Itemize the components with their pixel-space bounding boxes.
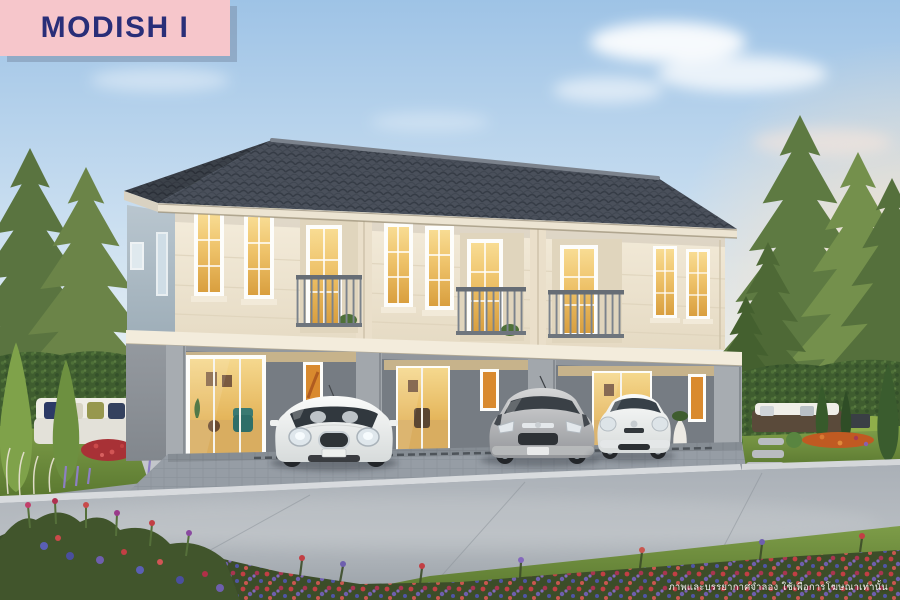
scene-illustration	[0, 0, 900, 600]
license-plate	[527, 447, 549, 455]
upper-window	[191, 210, 227, 302]
upper-window	[422, 226, 457, 316]
project-name-badge: MODISH I	[0, 0, 230, 56]
topiary-ball	[786, 432, 802, 448]
side-window	[131, 243, 143, 269]
side-mirror	[270, 420, 279, 426]
orange-flower-bed	[802, 432, 874, 448]
disclaimer-text: ภาพและบรรยากาศจำลอง ใช้เพื่อการโฆษณาเท่า…	[668, 580, 888, 595]
balcony	[548, 239, 624, 343]
upper-window	[381, 223, 416, 313]
balcony	[296, 219, 362, 333]
grille	[624, 428, 644, 433]
side-mirror	[389, 420, 398, 426]
upper-window	[683, 249, 713, 324]
grille	[518, 433, 558, 445]
project-name-label: MODISH I	[41, 11, 190, 45]
headlight	[600, 417, 616, 431]
upper-window	[650, 246, 680, 323]
rendering-stage: MODISH I ภาพและบรรยากาศจำลอง ใช้เพื่อการ…	[0, 0, 900, 600]
headlight	[652, 417, 668, 431]
balcony	[456, 233, 526, 341]
grille	[319, 432, 349, 448]
side-window	[157, 233, 167, 295]
upper-window	[241, 213, 277, 305]
license-plate	[322, 449, 346, 457]
